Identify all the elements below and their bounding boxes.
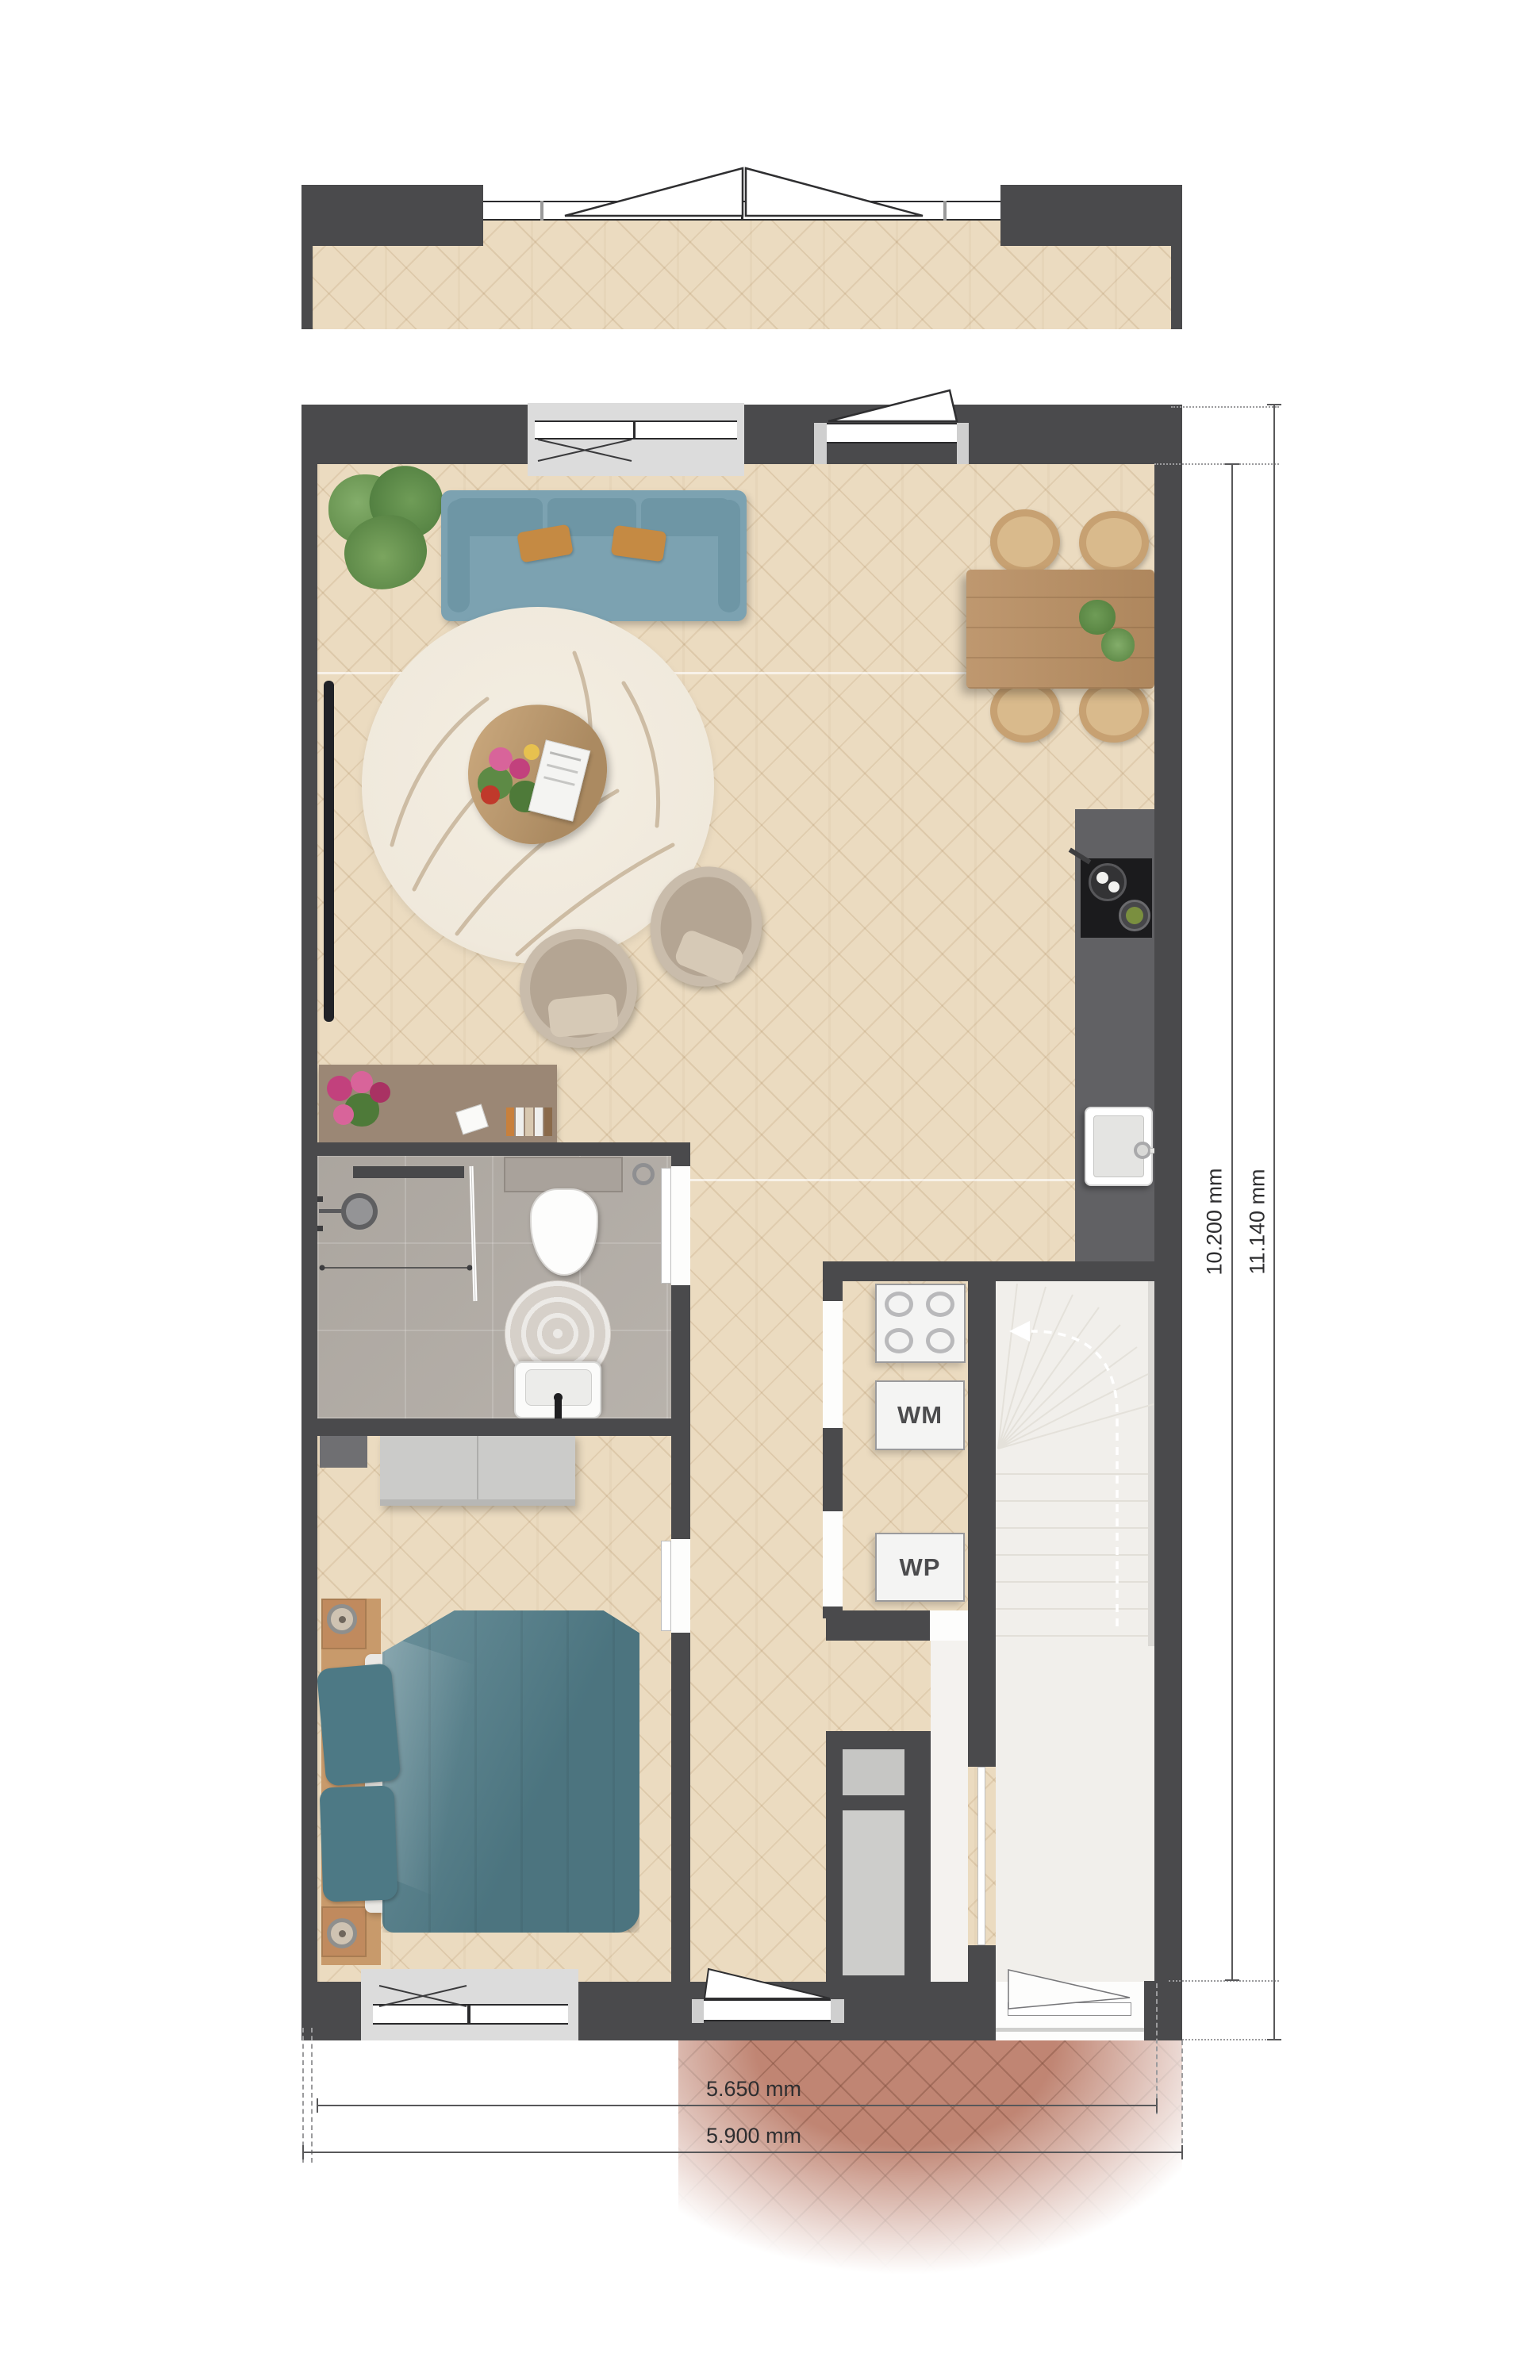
flower xyxy=(327,1076,352,1101)
bedroom-door-leaf xyxy=(661,1541,671,1631)
bathroom-vanity xyxy=(514,1361,601,1418)
balcony-door xyxy=(535,420,737,440)
book xyxy=(535,1107,543,1136)
dim-extension xyxy=(1156,1983,1158,2114)
balcony-corner-block-left xyxy=(301,185,483,246)
plant-large xyxy=(324,466,447,592)
stair-hall-door-leaf xyxy=(977,1767,985,1945)
dim-tick xyxy=(302,2145,304,2159)
heat-pump: WP xyxy=(875,1533,965,1602)
desk xyxy=(319,1065,557,1142)
wall-west xyxy=(301,405,317,2040)
storage-niche xyxy=(843,1810,904,1975)
table-plant xyxy=(1101,628,1135,662)
wall-stair-west xyxy=(968,1281,996,1767)
dim-line-horizontal-outer xyxy=(303,2152,1182,2153)
toilet-cistern xyxy=(504,1157,623,1192)
dim-extension xyxy=(1181,2040,1183,2159)
sofa-armrest xyxy=(718,500,740,612)
sofa-pillow xyxy=(611,525,667,562)
dresser-seam xyxy=(477,1434,478,1499)
dim-extension xyxy=(1154,463,1279,465)
newspaper-line xyxy=(550,751,582,762)
shower-head xyxy=(341,1193,378,1230)
bed-pillow xyxy=(320,1785,398,1902)
closet-door-opening xyxy=(823,1511,843,1606)
book xyxy=(544,1107,552,1136)
hob-ring xyxy=(885,1292,913,1317)
toilet-roll-holder xyxy=(632,1163,655,1185)
flower xyxy=(481,785,500,804)
living-window xyxy=(827,423,957,443)
tv-screen xyxy=(324,681,334,1022)
dim-label-vertical-inner: 10.200 mm xyxy=(1203,1168,1227,1275)
fried-egg xyxy=(1096,872,1108,884)
nightstand-lamp xyxy=(327,1604,357,1634)
dim-line-horizontal-inner xyxy=(317,2105,1157,2106)
window-jamb xyxy=(831,1999,844,2023)
bedroom-window xyxy=(373,2004,568,2025)
newspaper-line xyxy=(543,776,575,786)
wall-stair-north xyxy=(823,1261,1154,1281)
wall-bathroom-bedroom xyxy=(317,1418,690,1436)
cooktop xyxy=(1081,858,1152,938)
wall-stair-west-lower xyxy=(968,1945,996,1982)
cooking-pot xyxy=(1119,900,1150,931)
balcony-window-mullion xyxy=(943,201,947,221)
faucet-base xyxy=(1134,1142,1151,1159)
hob-ring xyxy=(885,1328,913,1353)
hob-ring xyxy=(926,1328,954,1353)
balcony-corner-block-right xyxy=(1000,185,1182,246)
dim-extension xyxy=(1169,1980,1279,1982)
dining-chair xyxy=(1079,511,1149,574)
front-door-leaf xyxy=(1008,2002,1131,2016)
heat-pump-label: WP xyxy=(877,1534,963,1600)
nightstand-lamp xyxy=(327,1918,357,1948)
dim-line-vertical-inner xyxy=(1231,464,1233,1981)
flower xyxy=(333,1104,354,1125)
closet-door-opening xyxy=(930,1610,968,1641)
book xyxy=(525,1107,533,1136)
washing-machine: WM xyxy=(875,1380,965,1450)
armchair xyxy=(520,929,637,1048)
bedroom-door-opening xyxy=(671,1539,690,1633)
dim-tick xyxy=(1267,2039,1281,2040)
dim-tick xyxy=(1181,2145,1183,2159)
hob-ring xyxy=(926,1292,954,1317)
wall-bathroom-north xyxy=(317,1142,690,1156)
front-door-threshold xyxy=(996,2028,1144,2032)
notebook xyxy=(455,1104,489,1134)
dim-extension xyxy=(302,2028,304,2163)
bedroom-radiator xyxy=(320,1434,367,1468)
bedroom-window-post xyxy=(467,2006,470,2023)
balcony-door-panel xyxy=(528,403,744,476)
shower-rail xyxy=(353,1166,464,1178)
bathroom-floor xyxy=(317,1156,673,1418)
dim-label-vertical-outer: 11.140 mm xyxy=(1246,1169,1270,1274)
bathroom-door-leaf xyxy=(661,1168,671,1284)
dining-chair xyxy=(990,509,1060,574)
stair-stringer xyxy=(1148,1281,1154,1646)
wall-east xyxy=(1154,405,1182,2040)
bed-duvet xyxy=(382,1610,639,1933)
armchair-pillow xyxy=(673,928,745,986)
flower xyxy=(509,758,530,779)
window-jamb xyxy=(814,423,827,464)
closet-door-opening xyxy=(823,1301,843,1428)
newspaper-line xyxy=(547,764,578,774)
entry-corridor-floor xyxy=(931,1641,968,1982)
book xyxy=(516,1107,524,1136)
bathroom-door-opening xyxy=(671,1166,690,1285)
pot-food xyxy=(1126,907,1143,924)
dim-tick xyxy=(1225,463,1239,465)
dim-label-horizontal-outer: 5.900 mm xyxy=(706,2124,801,2148)
washing-machine-label: WM xyxy=(877,1382,963,1449)
dim-line-vertical-outer xyxy=(1273,405,1275,2040)
hall-window xyxy=(704,1999,831,2021)
dim-tick xyxy=(1225,1979,1239,1981)
sofa-armrest xyxy=(447,500,470,612)
hob-unit xyxy=(875,1284,966,1363)
balcony-window-center-post xyxy=(741,201,743,221)
flower xyxy=(370,1082,390,1103)
dim-tick xyxy=(1156,2098,1158,2113)
vanity-faucet-knob xyxy=(554,1393,563,1402)
flower xyxy=(524,744,540,760)
kitchen-sink xyxy=(1085,1107,1153,1186)
dining-chair xyxy=(1079,679,1149,743)
desk-flowers xyxy=(324,1069,397,1138)
book xyxy=(506,1107,514,1136)
dresser xyxy=(380,1434,575,1506)
vanity-faucet xyxy=(555,1399,562,1418)
dim-tick xyxy=(317,2098,318,2113)
dim-extension xyxy=(311,2028,313,2163)
sofa xyxy=(441,490,747,621)
meter-closet-niche xyxy=(843,1749,904,1795)
bed-pillow xyxy=(317,1663,401,1787)
window-jamb xyxy=(957,423,969,464)
armchair-pillow xyxy=(547,993,620,1038)
stair-hall-floor xyxy=(996,1281,1154,1982)
dim-extension xyxy=(1182,2039,1279,2040)
dining-table xyxy=(966,570,1154,689)
fried-egg xyxy=(1108,881,1119,892)
dim-tick xyxy=(1267,404,1281,405)
balcony-window-mullion xyxy=(540,201,543,221)
balcony-door-center-post xyxy=(633,422,636,438)
dining-chair xyxy=(990,679,1060,743)
dim-extension xyxy=(1171,406,1279,408)
window-jamb xyxy=(692,1999,704,2023)
frying-pan xyxy=(1089,863,1127,901)
dim-label-horizontal-inner: 5.650 mm xyxy=(706,2077,801,2102)
floor-plan: WM WP xyxy=(0,0,1540,2380)
